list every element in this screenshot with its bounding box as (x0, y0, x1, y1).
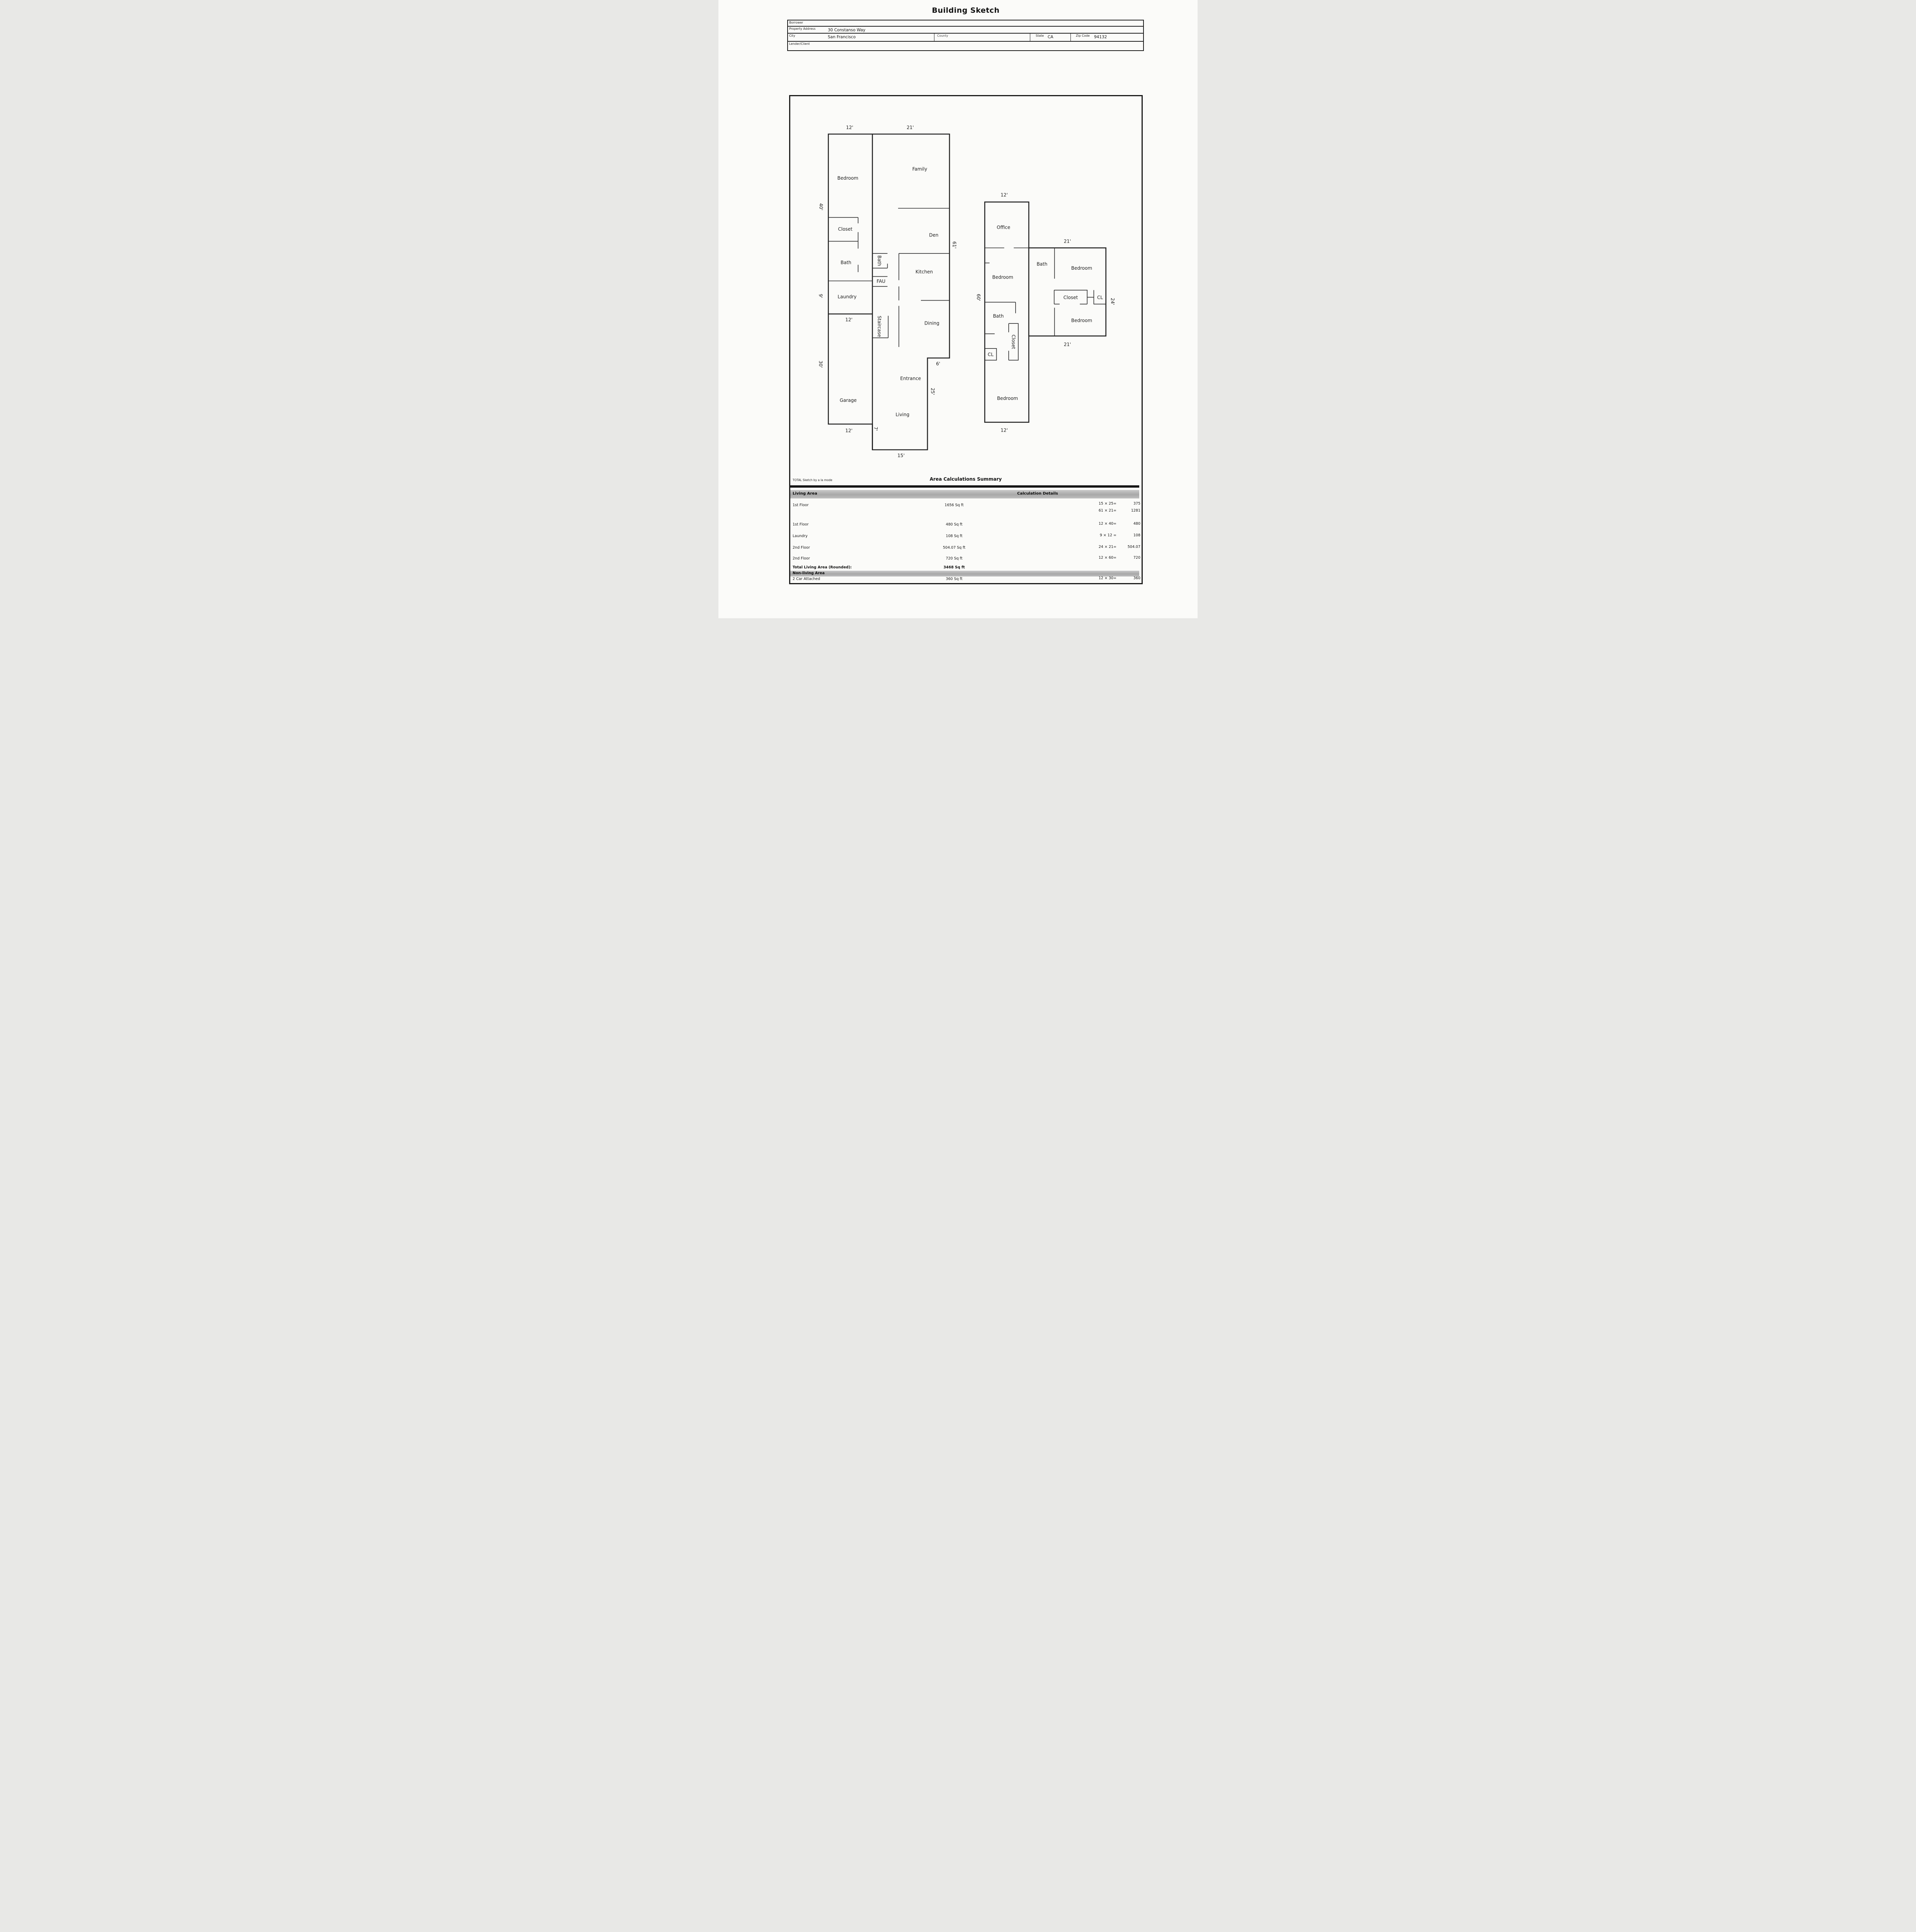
dim-label-b-bottom-12: 12' (1001, 428, 1008, 433)
room-labels: Bedroom Family Closet Den Bath Bath Kitc… (837, 166, 1103, 417)
room-label-bedroom-a: Bedroom (837, 175, 858, 181)
floorplan-outer-walls (829, 134, 1106, 450)
dim-label-left-40: 40' (818, 203, 824, 211)
room-label-laundry: Laundry (838, 294, 857, 299)
dim-label-7: 7' (873, 427, 878, 431)
row-calc-value: 504.07 (1120, 545, 1140, 549)
dim-label-left-30: 30' (818, 361, 824, 368)
room-label-closet-b2: Closet (1063, 295, 1078, 300)
dim-label-bottom-15: 15' (897, 453, 905, 458)
dim-label-b-top-12: 12' (1001, 192, 1008, 198)
row-calc-value: 720 (1120, 556, 1140, 560)
nonliving-area-header: Non-living Area (793, 571, 825, 575)
dimension-labels: 12' 21' 40' 61' 9' 12' 30' 6' 25' 7' 12'… (818, 125, 1115, 458)
room-label-closet-a: Closet (838, 226, 853, 232)
dim-label-left-9: 9' (818, 294, 824, 298)
building-sketch-page: Building Sketch Borrower Property Addres… (718, 0, 1198, 618)
room-label-fau: FAU (876, 279, 885, 284)
county-label: County (937, 34, 948, 37)
summary-heading: Area Calculations Summary (873, 476, 1058, 482)
row-name: 2nd Floor (793, 546, 810, 550)
property-address-label: Property Address (789, 27, 815, 31)
row-calc-value: 375 (1120, 502, 1140, 506)
zip-code-value: 94132 (1094, 35, 1107, 39)
row-calc-value: 360 (1120, 576, 1140, 580)
property-address-value: 30 Constanso Way (828, 28, 865, 32)
room-label-bedroom-b1: Bedroom (992, 275, 1013, 280)
row-calc-expr: 15 × 25= (1065, 502, 1116, 506)
dim-label-right-25: 25' (930, 388, 935, 395)
row-calc-expr: 9 × 12 = (1065, 533, 1116, 537)
dim-label-mid-12: 12' (845, 317, 853, 323)
dim-label-c-top-21: 21' (1064, 238, 1071, 244)
room-label-family: Family (912, 166, 927, 172)
dim-label-right-61: 61' (951, 241, 957, 249)
row-calc-expr: 61 × 21= (1065, 509, 1116, 513)
room-label-dining: Dining (924, 320, 939, 326)
row-calc-expr: 12 × 30= (1065, 576, 1116, 580)
row-calc-value: 1281 (1120, 509, 1140, 513)
row-name: 1st Floor (793, 522, 808, 527)
room-label-office: Office (997, 224, 1010, 230)
living-area-header-bar (790, 490, 1139, 498)
row-name: 1st Floor (793, 503, 808, 507)
dim-label-top-21: 21' (907, 125, 914, 130)
room-label-living: Living (896, 412, 910, 417)
room-label-bath-a: Bath (841, 260, 851, 265)
row-calc-value: 480 (1120, 522, 1140, 526)
dim-label-6: 6' (936, 361, 940, 367)
room-label-bedroom-b2-lower: Bedroom (1071, 318, 1092, 323)
city-label: City (789, 34, 795, 37)
row-calc-expr: 12 × 60= (1065, 556, 1116, 560)
total-living-area-value: 3468 Sq ft (900, 565, 1008, 570)
total-living-area-label: Total Living Area (Rounded): (793, 565, 852, 570)
row-area: 108 Sq ft (900, 534, 1008, 538)
floorplan-interior-walls (829, 208, 1106, 360)
room-label-staircase: Staircase (877, 316, 882, 337)
page-title: Building Sketch (865, 6, 1066, 15)
room-label-bath-b1: Bath (993, 313, 1004, 319)
room-label-garage: Garage (840, 398, 857, 403)
city-value: San Francisco (828, 35, 856, 39)
lender-client-label: Lender/Client (789, 42, 810, 46)
row-calc-expr: 12 × 40= (1065, 522, 1116, 526)
row-calc-value: 108 (1120, 533, 1140, 537)
nonliving-header-bar (790, 571, 1139, 577)
floorplan-sketch: Bedroom Family Closet Den Bath Bath Kitc… (789, 95, 1140, 478)
state-label: State (1036, 34, 1044, 37)
row-area: 720 Sq ft (900, 556, 1008, 561)
room-label-cl-b2: CL (1097, 295, 1103, 300)
calculation-details-header: Calculation Details (1017, 492, 1058, 496)
row-calc-expr: 24 × 21= (1065, 545, 1116, 549)
room-label-bedroom-b1-lower: Bedroom (997, 396, 1018, 401)
row-area: 1656 Sq ft (900, 503, 1008, 507)
borrower-label: Borrower (789, 21, 803, 24)
dim-label-c-right-24: 24' (1110, 298, 1115, 305)
room-label-den: Den (929, 232, 938, 238)
room-label-closet-b1: Closet (1011, 335, 1016, 349)
sketch-branding: TOTAL Sketch by a la mode (793, 478, 832, 482)
living-area-header: Living Area (793, 492, 817, 496)
row-area: 480 Sq ft (900, 522, 1008, 527)
room-label-entrance: Entrance (900, 376, 921, 381)
row-area: 504.07 Sq ft (900, 546, 1008, 550)
dim-label-top-12: 12' (846, 125, 853, 130)
dim-label-c-bottom-21: 21' (1064, 342, 1071, 347)
row-name: 2 Car Attached (793, 577, 820, 581)
state-value: CA (1048, 35, 1053, 39)
room-label-bath-b2: Bath (1036, 261, 1047, 267)
room-label-kitchen: Kitchen (915, 269, 933, 274)
room-label-bath-hall: Bath (877, 255, 882, 266)
zip-code-label: Zip Code (1076, 34, 1090, 37)
row-area: 360 Sq ft (900, 577, 1008, 581)
room-label-cl-b1: CL (988, 352, 994, 357)
row-name: Laundry (793, 534, 808, 538)
dim-label-b-left-60: 60' (976, 294, 981, 301)
room-label-bedroom-b2-upper: Bedroom (1071, 265, 1092, 271)
row-name: 2nd Floor (793, 556, 810, 561)
summary-divider-bar (790, 485, 1139, 488)
dim-label-garage-12: 12' (845, 428, 853, 434)
